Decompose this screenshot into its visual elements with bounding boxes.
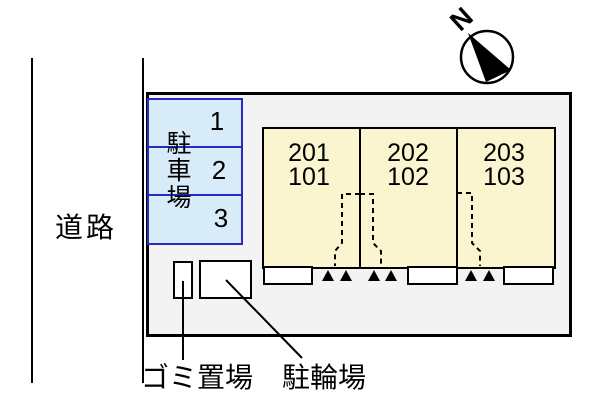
unit-number-upper: 203: [473, 141, 535, 165]
porch-rect: [263, 266, 313, 285]
porch-rect: [407, 266, 458, 285]
parking-space-divider: [147, 146, 243, 148]
parking-space-divider: [147, 194, 243, 196]
unit-number-lower: 103: [473, 165, 535, 189]
parking-space-number-1: 1: [200, 106, 234, 137]
garbage-area-rect: [173, 261, 193, 299]
garbage-area-label: ゴミ置場: [141, 356, 253, 396]
parking-space-number-2: 2: [202, 155, 236, 186]
road-boundary-line-right: [142, 58, 144, 383]
road-boundary-line-left: [31, 58, 33, 383]
unit-number-lower: 102: [377, 165, 439, 189]
unit-label-201-101: 201 101: [278, 141, 340, 189]
north-n-label: N: [444, 1, 479, 37]
unit-label-203-103: 203 103: [473, 141, 535, 189]
bicycle-parking-rect: [199, 260, 252, 299]
bicycle-parking-label: 駐輪場: [282, 356, 366, 396]
parking-label: 駐車場: [163, 130, 190, 211]
compass-needle-icon: [468, 33, 511, 82]
parking-space-number-3: 3: [204, 203, 238, 234]
compass-circle-icon: [461, 31, 513, 83]
unit-number-upper: 202: [377, 141, 439, 165]
unit-label-202-102: 202 102: [377, 141, 439, 189]
porch-rect: [503, 266, 554, 285]
unit-number-lower: 101: [278, 165, 340, 189]
unit-number-upper: 201: [278, 141, 340, 165]
site-plan: 道路 駐車場 1 2 3 201 101 202 102 203 103: [0, 0, 600, 400]
road-label: 道路: [55, 206, 117, 246]
